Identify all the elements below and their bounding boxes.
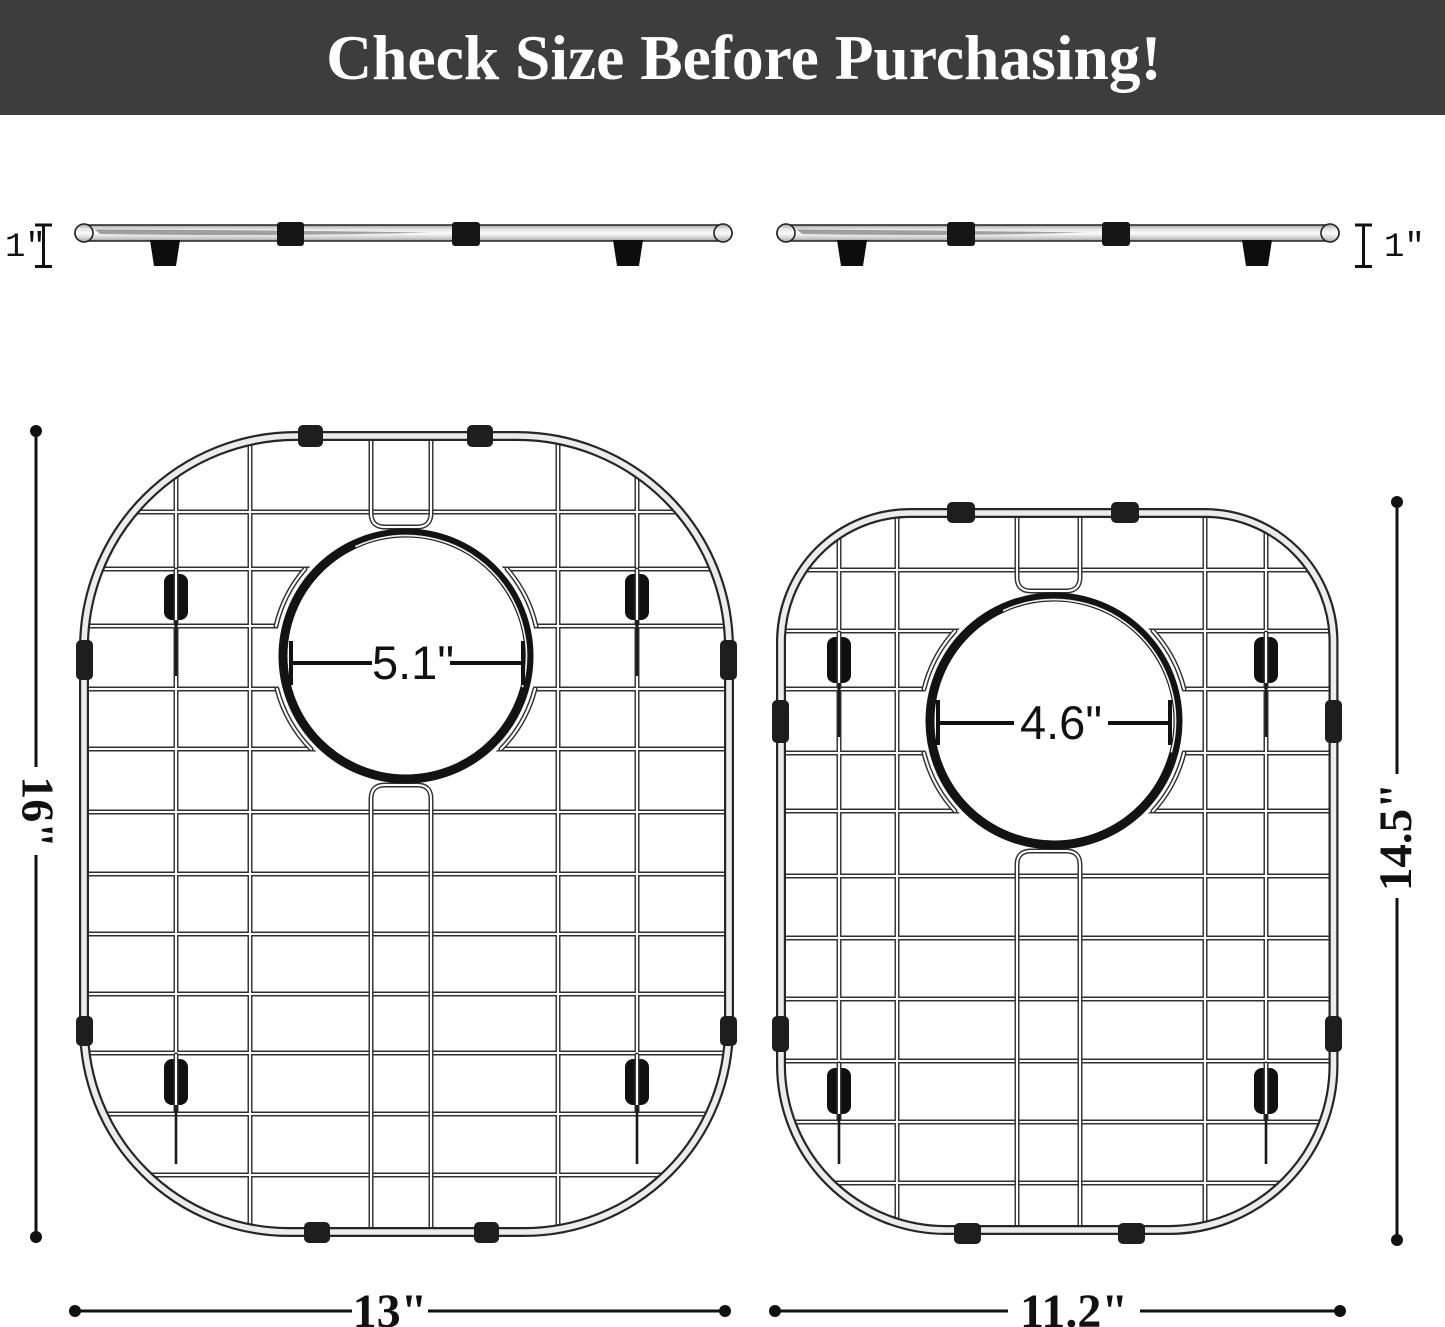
svg-text:4.6": 4.6" xyxy=(1020,696,1102,749)
svg-text:Check Size Before Purchasing!: Check Size Before Purchasing! xyxy=(326,22,1161,93)
svg-text:1": 1" xyxy=(1384,229,1425,267)
svg-text:13": 13" xyxy=(353,1285,428,1327)
svg-text:14.5": 14.5" xyxy=(1370,783,1422,891)
svg-text:5.1": 5.1" xyxy=(372,636,454,689)
svg-text:11.2": 11.2" xyxy=(1020,1285,1128,1327)
svg-text:16": 16" xyxy=(13,776,64,848)
svg-text:1": 1" xyxy=(5,229,46,267)
